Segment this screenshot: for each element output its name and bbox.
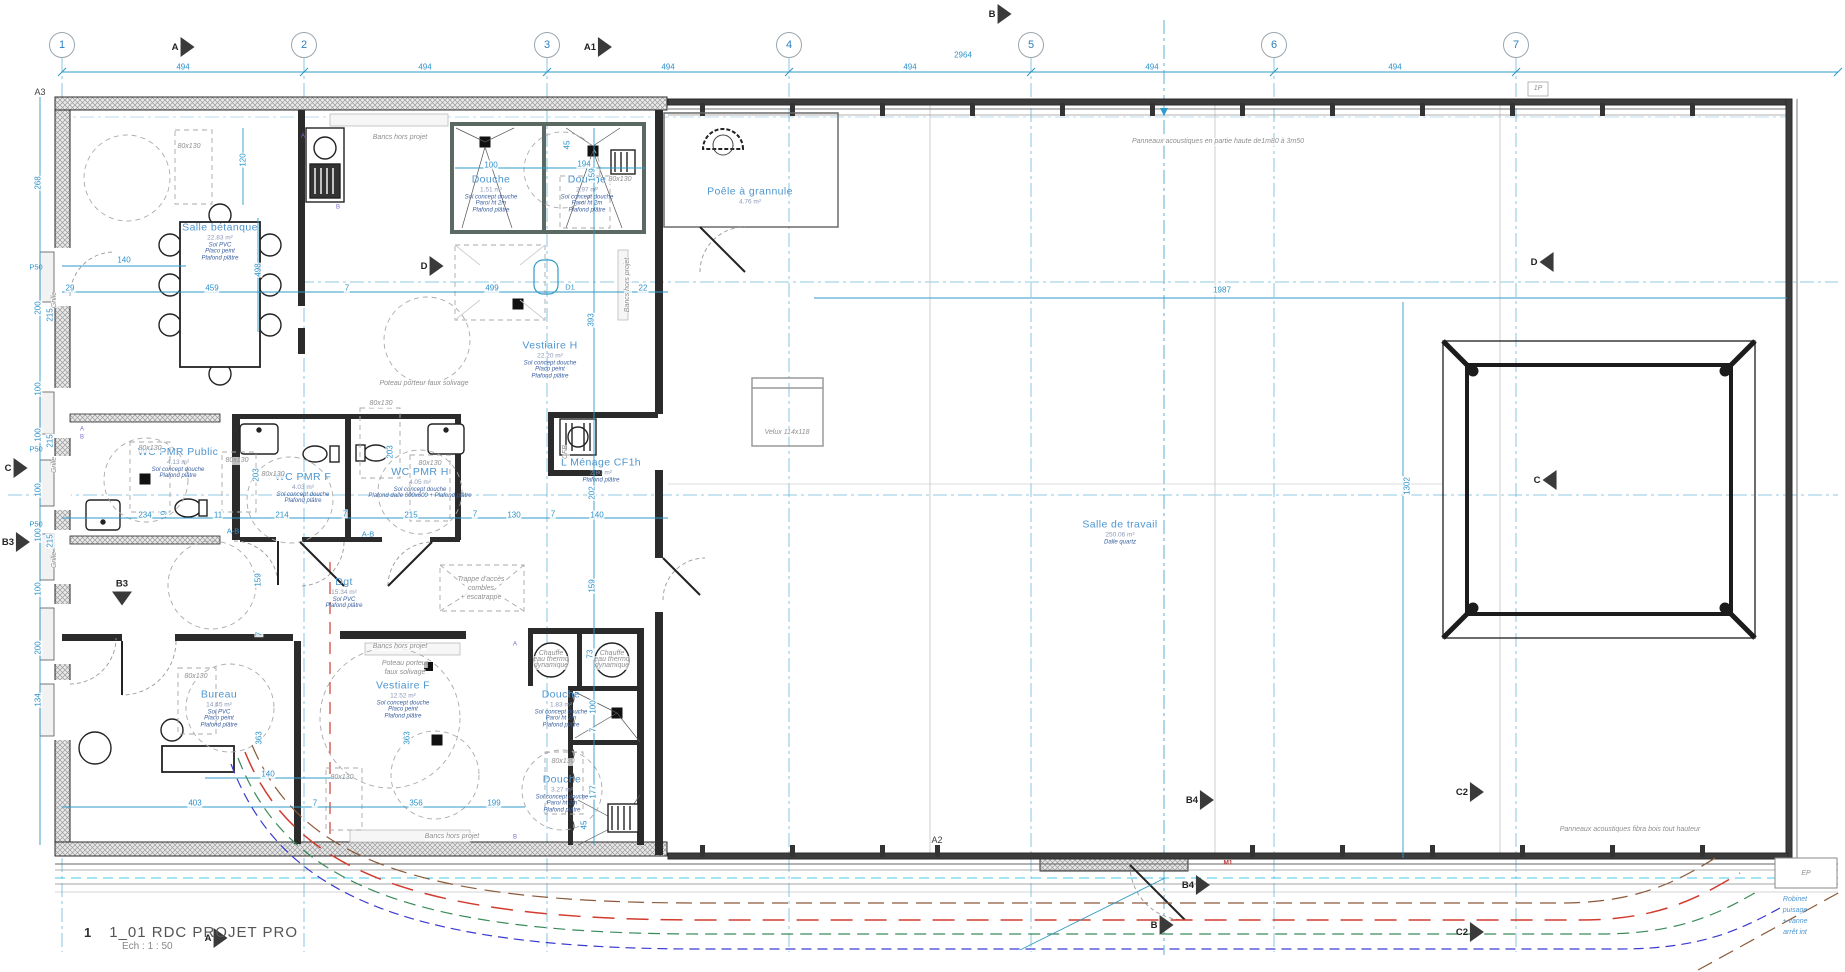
room-finish-note: Sol concept douche	[138, 466, 218, 473]
annotation-text: Trappe d'accès	[457, 576, 504, 584]
room-area: 1.83 m²	[535, 701, 588, 708]
grid-bubble-1: 1	[49, 32, 75, 58]
dimension-text: 215	[45, 307, 54, 322]
annotation-text: P50	[29, 446, 42, 455]
section-marker-c2: C2	[1456, 782, 1484, 802]
dimension-text: 100	[588, 699, 597, 714]
room-finish-note: Plafond dalle 600x600 + Plafond plâtre	[368, 493, 471, 500]
room-label: Douche1.51 m²Sol concept doucheParoi ht …	[465, 173, 518, 214]
section-marker-label: B	[989, 9, 996, 20]
room-finish-note: Plafond plâtre	[522, 374, 577, 381]
room-area: 250.06 m²	[1082, 531, 1157, 538]
room-finish-note: Sol concept douche	[376, 700, 430, 707]
grid-bubble-4: 4	[776, 32, 802, 58]
dimension-text: 268	[33, 175, 42, 190]
annotation-text: 80x130	[609, 176, 632, 184]
dimension-text: 140	[116, 255, 131, 264]
dimension-text: 7	[472, 509, 478, 518]
annotation-text: dynamique	[595, 662, 629, 670]
dimension-text: 9	[159, 510, 168, 516]
annotation-text: Robinet	[1783, 896, 1807, 904]
dimension-text: 7	[344, 283, 350, 292]
dimension-text: 140	[589, 510, 604, 519]
annotation-text: 80x130	[262, 471, 285, 479]
room-finish-note: Plafond plâtre	[182, 256, 258, 263]
room-name: Salle de travail	[1082, 518, 1157, 530]
room-name: Douche	[465, 173, 518, 185]
text-labels-layer: 1234567AA1BDDCCB3B3B4B4BC2C2ASalle bétan…	[0, 0, 1845, 972]
dimension-text: 214	[274, 510, 289, 519]
room-finish-note: Paroi ht 2m	[536, 801, 589, 808]
room-name: Bureau	[200, 688, 237, 700]
annotation-text: A	[80, 427, 84, 434]
dimension-text: 159	[253, 572, 262, 587]
annotation-text: 80x130	[552, 758, 575, 766]
room-finish-note: Sol concept douche	[561, 194, 614, 201]
room-label: Poêle à grannule4.76 m²	[707, 186, 793, 207]
room-area: 22.20 m²	[522, 352, 577, 359]
section-marker-d: D	[421, 256, 444, 276]
dimension-text: 215	[45, 433, 54, 448]
grid-bubble-3: 3	[534, 32, 560, 58]
room-finish-note: Plafond plâtre	[561, 477, 641, 484]
section-arrow-icon	[1542, 470, 1556, 490]
section-arrow-icon	[180, 37, 194, 57]
drawing-title: 1_01 RDC PROJET PRO	[109, 924, 298, 941]
dimension-text: 100	[33, 527, 42, 542]
dimension-text: 7	[342, 509, 348, 518]
annotation-text: 80x130	[139, 445, 162, 453]
room-name: Douche	[536, 773, 589, 785]
dimension-text: 459	[204, 283, 219, 292]
section-marker-c: C	[1534, 470, 1557, 490]
dimension-text: 215	[45, 533, 54, 548]
annotation-text: M1	[1223, 859, 1232, 866]
annotation-text: Grille	[51, 552, 59, 568]
room-finish-note: Sol concept douche	[535, 709, 588, 716]
room-area: 4.76 m²	[707, 199, 793, 206]
annotation-text: 80x130	[419, 460, 442, 468]
annotation-text: combles	[468, 585, 494, 593]
section-marker-a: A	[172, 37, 195, 57]
room-area: 4.05 m²	[368, 479, 471, 486]
dimension-text: 134	[33, 692, 42, 707]
section-marker-c: C	[5, 458, 28, 478]
room-name: Douche	[535, 688, 588, 700]
room-label: Douche3.27 m²Sol concept doucheParoi ht …	[536, 773, 589, 814]
section-arrow-icon	[1200, 790, 1214, 810]
dimension-text: 130	[506, 510, 521, 519]
dimension-text: 203	[251, 467, 260, 482]
dimension-text: 73	[585, 649, 594, 660]
annotation-text: EP	[1801, 870, 1810, 878]
annotation-text: CFB	[562, 445, 570, 459]
annotation-text: Bancs hors projet	[425, 833, 479, 841]
dimension-text: 498	[253, 262, 262, 277]
section-marker-b: B	[1151, 915, 1174, 935]
annotation-text: P50	[29, 521, 42, 530]
annotation-text: A2	[931, 835, 942, 845]
section-marker-label: B4	[1182, 880, 1194, 891]
section-arrow-icon	[1159, 915, 1173, 935]
section-marker-b3: B3	[2, 532, 30, 552]
grid-bubble-6: 6	[1261, 32, 1287, 58]
section-marker-label: D	[421, 261, 428, 272]
room-label: Bureau14.45 m²Sol PVCPlaco peintPlafond …	[200, 688, 237, 729]
section-marker-label: B4	[1186, 795, 1198, 806]
room-finish-note: Plafond plâtre	[138, 473, 218, 480]
section-arrow-icon	[1470, 922, 1484, 942]
room-name: Vestiaire F	[376, 679, 430, 691]
section-marker-label: D	[1531, 257, 1538, 268]
section-arrow-icon	[1470, 782, 1484, 802]
section-arrow-icon	[13, 458, 27, 478]
dimension-text: 1302	[1402, 476, 1411, 496]
annotation-text: B	[513, 835, 517, 842]
room-name: Vestiaire H	[522, 339, 577, 351]
room-area: 3.27 m²	[536, 786, 589, 793]
room-finish-note: Plafond plâtre	[200, 723, 237, 730]
room-area: 2.80 m²	[561, 469, 641, 476]
dimension-text: 499	[484, 283, 499, 292]
drawing-scale: Ech : 1 : 50	[122, 941, 298, 952]
dimension-text: 45	[562, 140, 571, 151]
annotation-text: 80x130	[370, 400, 393, 408]
room-area: 1.51 m²	[465, 186, 518, 193]
annotation-text: Grille	[51, 457, 59, 473]
annotation-text: Bancs hors projet	[373, 134, 427, 142]
annotation-text: Velux 114x118	[764, 429, 809, 437]
dimension-text: 2964	[953, 50, 973, 59]
room-finish-note: Plafond plâtre	[325, 603, 362, 610]
dimension-text: 356	[408, 798, 423, 807]
room-name: Salle bétanque	[182, 221, 258, 233]
room-area: 15.34 m²	[325, 589, 362, 596]
annotation-text: Bancs hors projet	[624, 258, 632, 312]
section-arrow-icon	[1196, 875, 1210, 895]
annotation-text: B	[336, 205, 340, 212]
dimension-text: 494	[1144, 62, 1159, 71]
dimension-text: 7	[254, 631, 263, 637]
annotation-text: D1	[565, 284, 575, 293]
annotation-text: B	[80, 435, 84, 442]
drawing-number: 1	[84, 925, 91, 940]
annotation-text: 80x130	[226, 457, 249, 465]
room-finish-note: Plafond plâtre	[535, 723, 588, 730]
section-arrow-icon	[598, 37, 612, 57]
dimension-text: 7	[550, 509, 556, 518]
annotation-text: 1P	[1534, 85, 1543, 93]
annotation-text: arrêt int	[1783, 929, 1807, 937]
room-area: 14.45 m²	[200, 701, 237, 708]
room-label: Douche1.83 m²Sol concept doucheParoi ht …	[535, 688, 588, 729]
section-arrow-icon	[112, 592, 132, 606]
dimension-text: 494	[660, 62, 675, 71]
dimension-text: 159	[587, 167, 596, 182]
section-marker-label: B3	[116, 579, 128, 590]
section-marker-label: B3	[2, 537, 14, 548]
dimension-text: 494	[1387, 62, 1402, 71]
annotation-text: 80x130	[331, 774, 354, 782]
dimension-text: 45	[579, 820, 588, 831]
dimension-text: 100	[33, 482, 42, 497]
annotation-text: A3	[34, 87, 45, 97]
dimension-text: 200	[33, 640, 42, 655]
dimension-text: 1987	[1212, 285, 1232, 294]
annotation-text: + vanne	[1782, 918, 1807, 926]
room-finish-note: Plafond plâtre	[465, 208, 518, 215]
annotation-text: 80x130	[185, 673, 208, 681]
room-finish-note: Plafond plâtre	[275, 498, 331, 505]
section-marker-label: C2	[1456, 787, 1468, 798]
room-finish-note: Dalle quartz	[1082, 539, 1157, 546]
dimension-text: 140	[260, 769, 275, 778]
floor-plan-canvas: 1234567AA1BDDCCB3B3B4B4BC2C2ASalle bétan…	[0, 0, 1845, 972]
dimension-text: 177	[588, 784, 597, 799]
section-arrow-icon	[1539, 252, 1553, 272]
room-finish-note: Sol PVC	[182, 242, 258, 249]
room-label: Salle bétanque22.83 m²Sol PVCPlaco peint…	[182, 221, 258, 262]
dimension-text: 494	[902, 62, 917, 71]
room-finish-note: Paroi ht 2m	[561, 201, 614, 208]
dimension-text: 7	[312, 798, 318, 807]
annotation-text: P50	[29, 264, 42, 273]
grid-bubble-2: 2	[291, 32, 317, 58]
dimension-text: 7	[588, 727, 597, 733]
room-label: WC PMR H4.05 m²Sol concept douchePlafond…	[368, 466, 471, 500]
room-label: Dgt15.34 m²Sol PVCPlafond plâtre	[325, 576, 362, 610]
room-finish-note: Paroi ht 2m	[535, 716, 588, 723]
section-marker-b: B	[989, 4, 1012, 24]
room-label: Salle de travail250.06 m²Dalle quartz	[1082, 518, 1157, 545]
annotation-text: puisage	[1783, 907, 1808, 915]
room-finish-note: Sol concept douche	[368, 486, 471, 493]
room-area: 22.83 m²	[182, 234, 258, 241]
section-marker-b4: B4	[1182, 875, 1210, 895]
section-marker-b4: B4	[1186, 790, 1214, 810]
grid-bubble-5: 5	[1018, 32, 1044, 58]
dimension-text: 393	[586, 312, 595, 327]
title-block: 1 1_01 RDC PROJET PRO Ech : 1 : 50	[84, 924, 298, 952]
section-arrow-icon	[429, 256, 443, 276]
annotation-text: 80x130	[178, 143, 201, 151]
dimension-text: 203	[385, 444, 394, 459]
room-label: Vestiaire F12.52 m²Sol concept douchePla…	[376, 679, 430, 720]
dimension-text: 403	[187, 798, 202, 807]
section-marker-d: D	[1531, 252, 1554, 272]
section-marker-a1: A1	[584, 37, 612, 57]
room-area: 2.97 m²	[561, 186, 614, 193]
room-finish-note: Placo peint	[376, 707, 430, 714]
room-label: L Ménage CF1h2.80 m²Plafond plâtre	[561, 456, 641, 483]
annotation-text: A-B	[362, 531, 375, 540]
room-label: Vestiaire H22.20 m²Sol concept douchePla…	[522, 339, 577, 380]
dimension-text: 159	[587, 578, 596, 593]
room-area: 4.03 m²	[275, 484, 331, 491]
room-finish-note: Paroi ht 2m	[465, 201, 518, 208]
room-finish-note: Placo peint	[522, 367, 577, 374]
annotation-text: Panneaux acoustiques fibra bois tout hau…	[1560, 826, 1701, 834]
room-finish-note: Sol PVC	[200, 709, 237, 716]
room-finish-note: Plafond plâtre	[376, 714, 430, 721]
dimension-text: 100	[33, 581, 42, 596]
annotation-text: A	[301, 134, 305, 141]
room-name: L Ménage CF1h	[561, 456, 641, 468]
room-area: 4.13 m²	[138, 459, 218, 466]
room-finish-note: Sol PVC	[325, 596, 362, 603]
dimension-text: 200	[33, 300, 42, 315]
section-marker-label: B	[1151, 920, 1158, 931]
section-marker-c2: C2	[1456, 922, 1484, 942]
dimension-text: 494	[417, 62, 432, 71]
room-finish-note: Sol concept douche	[536, 794, 589, 801]
dimension-text: 234	[137, 510, 152, 519]
dimension-text: 199	[486, 798, 501, 807]
room-finish-note: Sol concept douche	[465, 194, 518, 201]
dimension-text: 202	[587, 485, 596, 500]
annotation-text: faux solivage	[385, 669, 426, 677]
dimension-text: 100	[33, 381, 42, 396]
annotation-text: + escatrappe	[461, 594, 502, 602]
section-marker-label: A1	[584, 42, 596, 53]
dimension-text: 100	[483, 160, 498, 169]
section-arrow-icon	[997, 4, 1011, 24]
section-marker-label: C2	[1456, 927, 1468, 938]
annotation-text: Poteau porteur	[382, 660, 428, 668]
room-finish-note: Sol concept douche	[522, 360, 577, 367]
dimension-text: 22	[638, 283, 649, 292]
dimension-text: 11	[213, 510, 223, 519]
section-marker-b3: B3	[112, 579, 132, 606]
dimension-text: 494	[175, 62, 190, 71]
room-name: Dgt	[325, 576, 362, 588]
annotation-text: Grille	[51, 292, 59, 308]
annotation-text: A	[513, 642, 517, 649]
room-name: Poêle à grannule	[707, 186, 793, 198]
dimension-text: 29	[65, 283, 76, 292]
section-marker-label: C	[1534, 475, 1541, 486]
dimension-text: 363	[254, 730, 263, 745]
annotation-text: dynamique	[534, 662, 568, 670]
annotation-text: A-B	[227, 528, 240, 537]
room-finish-note: Placo peint	[182, 249, 258, 256]
annotation-text: Panneaux acoustiques en partie haute de1…	[1132, 138, 1304, 146]
room-finish-note: Plafond plâtre	[536, 808, 589, 815]
section-marker-label: C	[5, 463, 12, 474]
annotation-text: Poteau porteur faux solivage	[379, 380, 468, 388]
dimension-text: 215	[403, 510, 418, 519]
dimension-text: 120	[238, 152, 247, 167]
room-finish-note: Sol concept douche	[275, 491, 331, 498]
room-finish-note: Placo peint	[200, 716, 237, 723]
annotation-text: Bancs hors projet	[373, 643, 427, 651]
room-area: 12.52 m²	[376, 692, 430, 699]
section-arrow-icon	[16, 532, 30, 552]
dimension-text: 363	[402, 730, 411, 745]
grid-bubble-7: 7	[1503, 32, 1529, 58]
dimension-text: 100	[33, 427, 42, 442]
room-finish-note: Plafond plâtre	[561, 208, 614, 215]
section-marker-label: A	[172, 42, 179, 53]
